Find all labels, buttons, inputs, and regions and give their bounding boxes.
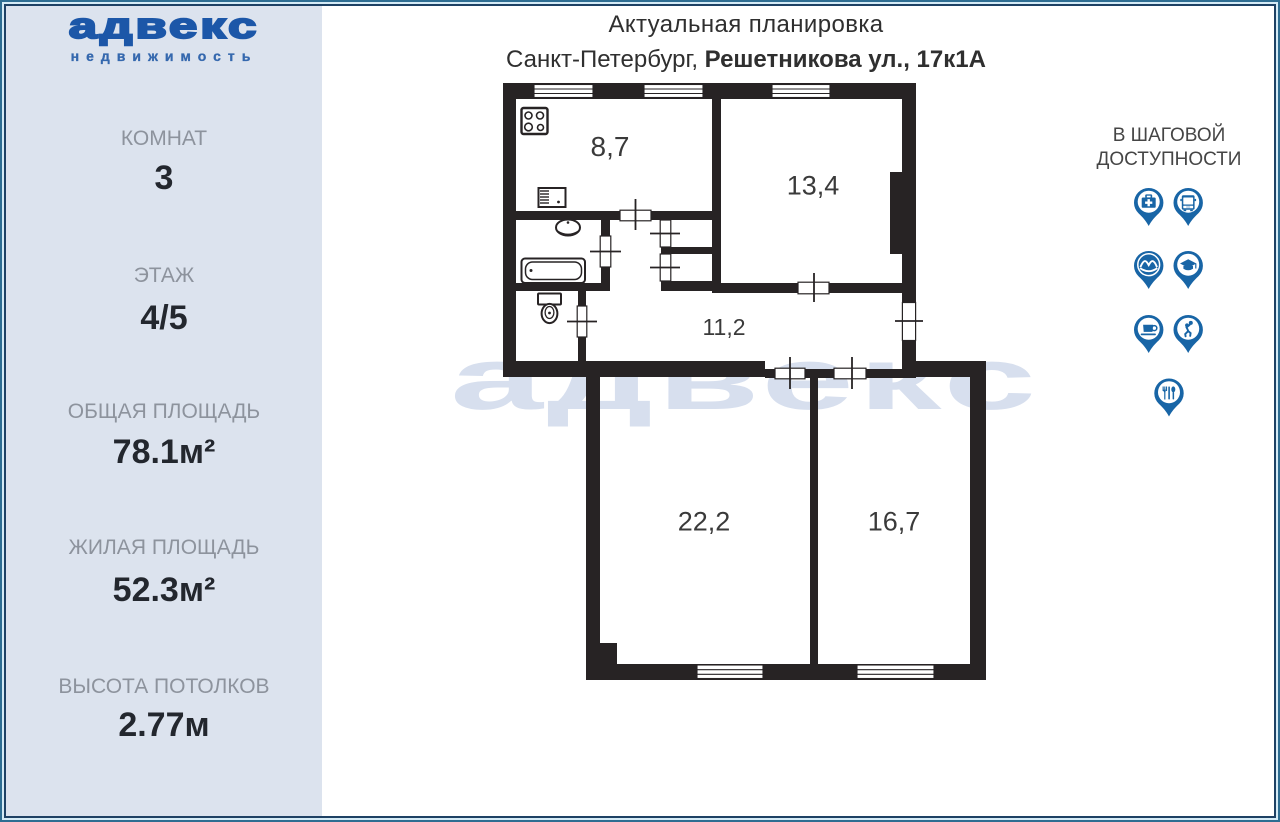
svg-text:22,2: 22,2 [678, 507, 731, 537]
svg-text:адвекс: адвекс [450, 330, 1040, 428]
svg-text:11,2: 11,2 [702, 314, 745, 340]
svg-text:16,7: 16,7 [868, 507, 921, 537]
svg-text:8,7: 8,7 [591, 131, 630, 162]
svg-text:13,4: 13,4 [787, 171, 840, 201]
